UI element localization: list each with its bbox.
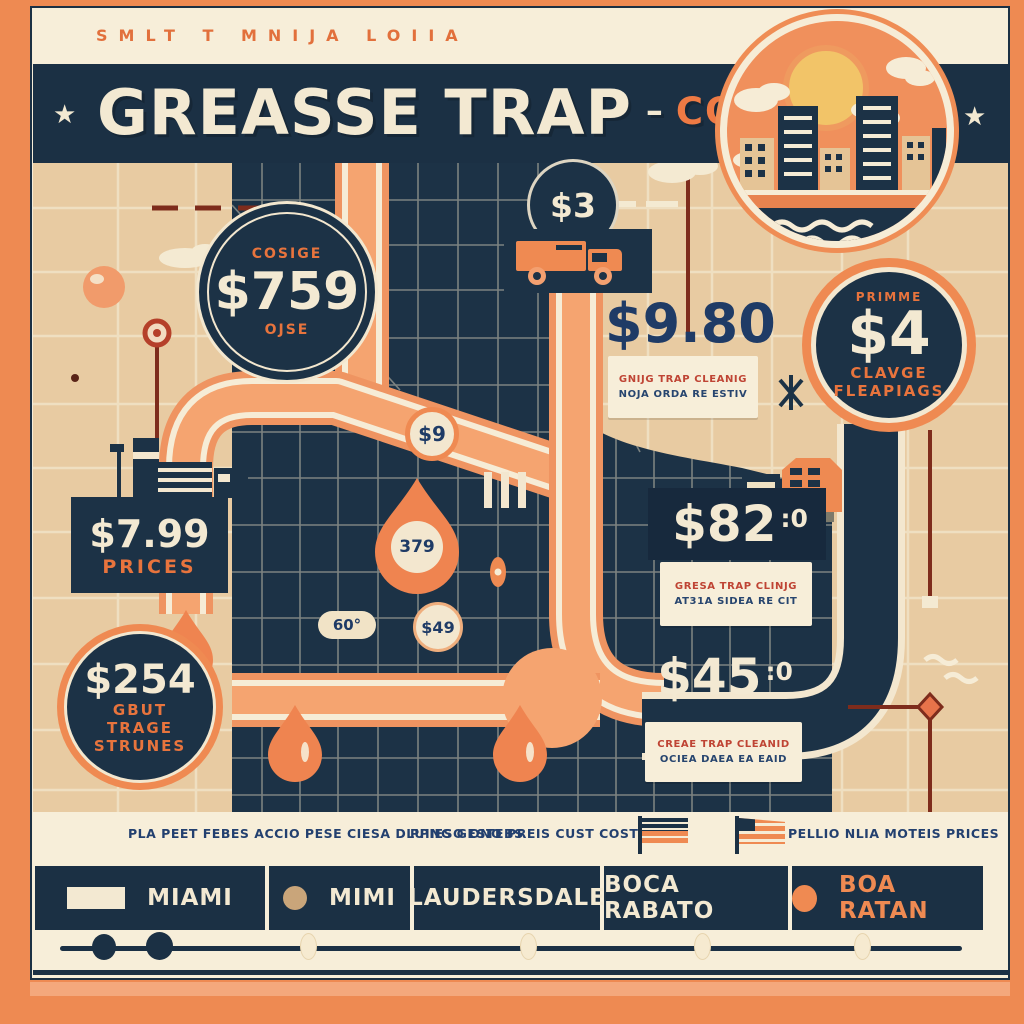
legend-item-mimi: MIMI <box>269 866 410 930</box>
bubble-label-1: CLAVGE <box>850 364 927 382</box>
price-bubble-4: PRIMME $4 CLAVGE FLEAPIAGS <box>811 267 967 423</box>
city-badge <box>714 8 960 254</box>
bubble-price: $4 <box>847 304 931 364</box>
flag-icon <box>638 816 702 854</box>
star-icon: ★ <box>53 100 76 130</box>
badge-price: $7.99 <box>89 512 209 556</box>
legend-label: BOA RATAN <box>839 872 983 924</box>
note-line-1: CREAE TRAP CLEANID <box>657 739 789 750</box>
page-title: GREASSE TRAP–COST <box>97 76 794 149</box>
price-suffix: :0 <box>780 504 807 533</box>
timeline-dot-empty <box>520 933 537 960</box>
price-badge-799: $7.99 PRICES <box>71 497 228 593</box>
poster-canvas: SMLT T MNIJA LOIIA ★ GREASSE TRAP–COST ★ <box>0 0 1024 1024</box>
map-marker-379: 379 <box>391 521 443 573</box>
bubble-label-2: TRAGE <box>107 719 173 737</box>
bubble-price: $3 <box>550 186 596 225</box>
legend-dot-orange <box>792 885 817 912</box>
bubble-label-1: GBUT <box>113 701 167 719</box>
legend-swatch <box>67 887 125 909</box>
timeline-track <box>60 946 962 951</box>
timeline-dot-empty <box>694 933 711 960</box>
legend-item-boca-rabato: BOCA RABATO <box>604 866 788 930</box>
bubble-label-2: FLEAPIAGS <box>834 382 945 400</box>
bubble-label-3: STRUNES <box>94 737 186 755</box>
legend-item-miami: MIAMI <box>35 866 265 930</box>
price-bubble-254: $254 GBUT TRAGE STRUNES <box>64 631 216 783</box>
tally-marks <box>484 472 526 508</box>
price-suffix: :0 <box>765 657 792 686</box>
timeline-dot-filled <box>146 932 173 960</box>
footnote-middle: PPIESO ONO PREIS CUST COSTES <box>410 826 657 841</box>
footnote-right: PELLIO NLIA MOTEIS PRICES <box>788 826 999 841</box>
truck-panel <box>504 229 652 293</box>
timeline-dot-empty <box>854 933 871 960</box>
price-980: $9.80 <box>605 292 775 355</box>
note-line-2: AT31A SIDEA RE CIT <box>675 596 798 607</box>
legend-label: BOCA RABATO <box>604 872 788 924</box>
legend-label: MIMI <box>329 885 396 911</box>
orange-ball <box>83 266 125 308</box>
bubble-price: $254 <box>84 659 195 701</box>
note-card-82: GRESA TRAP CLINJG AT31A SIDEA RE CIT <box>660 562 812 626</box>
bubble-ring <box>207 212 367 372</box>
legend-item-boa-ratan: BOA RATAN <box>792 866 983 930</box>
flag-icon <box>735 816 799 854</box>
price-bubble-759: COSIGE $759 OJSE <box>196 201 378 383</box>
map-marker-49: $49 <box>413 602 463 652</box>
title-dash: – <box>646 91 664 131</box>
note-line-2: OCIEA DAEA EA EAID <box>660 754 787 765</box>
legend-label: MIAMI <box>147 885 233 911</box>
note-line-1: GNIJG TRAP CLEANIG <box>619 374 747 385</box>
price-value: $45 <box>657 648 761 706</box>
bottom-rule <box>33 970 1008 975</box>
star-icon: ★ <box>963 102 986 132</box>
note-card-45: CREAE TRAP CLEANID OCIEA DAEA EA EAID <box>645 722 802 782</box>
map-marker-9: $9 <box>405 407 459 461</box>
kicker-text: SMLT T MNIJA LOIIA <box>96 26 469 45</box>
map-marker-60: 60° <box>318 611 376 639</box>
legend-item-laudersdale: LAUDERSDALE <box>414 866 600 930</box>
note-line-2: NOJA ORDA RE ESTIV <box>619 389 748 400</box>
title-main: GREASSE TRAP <box>97 76 632 149</box>
legend-label: LAUDERSDALE <box>408 885 606 911</box>
badge-label: PRICES <box>102 556 196 578</box>
note-line-1: GRESA TRAP CLINJG <box>675 581 797 592</box>
timeline-dot-filled <box>92 934 116 960</box>
timeline-dot-empty <box>300 933 317 960</box>
price-value: $82 <box>672 495 776 553</box>
price-82: $82:0 <box>655 495 825 553</box>
price-45: $45:0 <box>640 648 810 706</box>
legend-dot-tan <box>283 886 307 910</box>
note-card-980: GNIJG TRAP CLEANIG NOJA ORDA RE ESTIV <box>608 356 758 418</box>
